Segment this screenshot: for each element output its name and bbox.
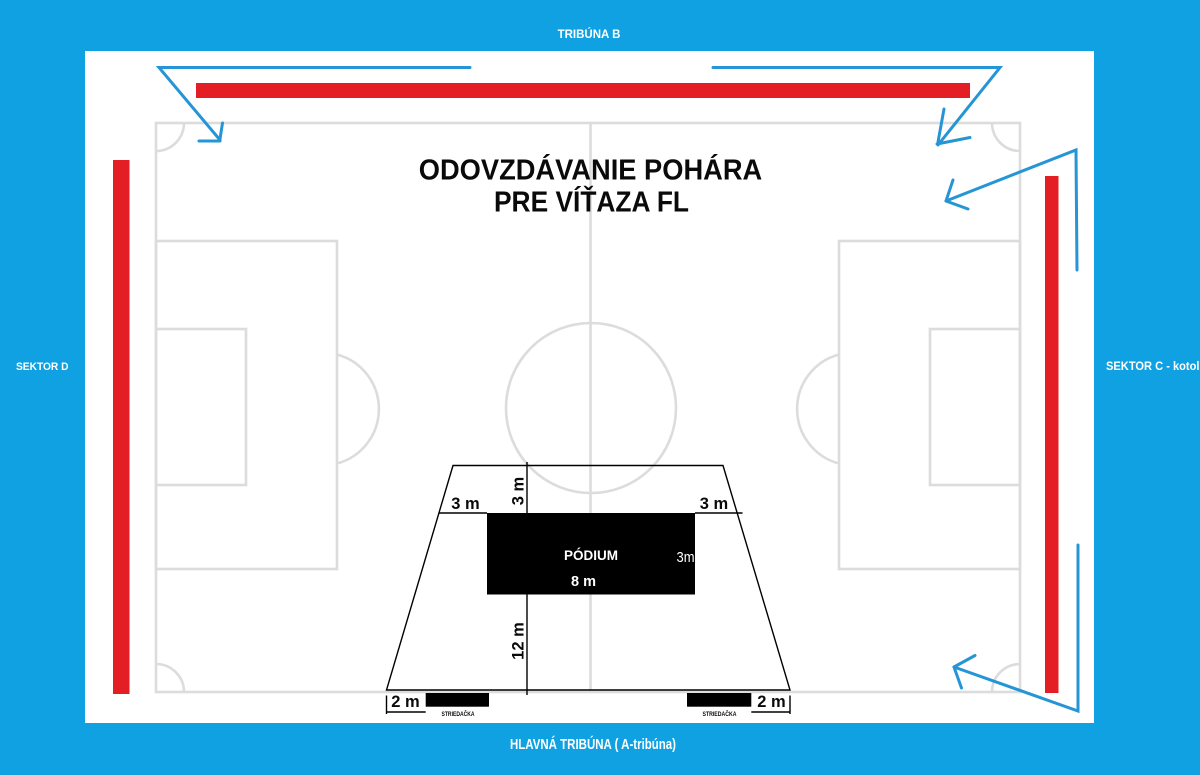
svg-text:3 m: 3 m [451, 495, 479, 513]
svg-text:SEKTOR C - kotol: SEKTOR C - kotol [1106, 359, 1200, 373]
svg-text:3 m: 3 m [700, 495, 728, 513]
svg-text:3 m: 3 m [510, 477, 528, 505]
svg-text:SEKTOR D: SEKTOR D [16, 361, 69, 373]
svg-text:STRIEDAČKA: STRIEDAČKA [703, 709, 737, 718]
svg-text:2 m: 2 m [757, 693, 785, 711]
svg-text:TRIBÚNA B: TRIBÚNA B [558, 28, 621, 41]
svg-text:8 m: 8 m [571, 574, 596, 590]
svg-text:PRE VÍŤAZA FL: PRE VÍŤAZA FL [494, 187, 689, 219]
svg-text:ODOVZDÁVANIE POHÁRA: ODOVZDÁVANIE POHÁRA [419, 155, 763, 187]
svg-text:HLAVNÁ TRIBÚNA ( A-tribúna): HLAVNÁ TRIBÚNA ( A-tribúna) [510, 735, 676, 753]
svg-text:PÓDIUM: PÓDIUM [564, 548, 618, 563]
svg-text:3m: 3m [677, 549, 695, 566]
svg-text:12 m: 12 m [510, 622, 528, 660]
svg-text:2 m: 2 m [391, 693, 419, 711]
svg-text:STRIEDAČKA: STRIEDAČKA [442, 709, 475, 718]
